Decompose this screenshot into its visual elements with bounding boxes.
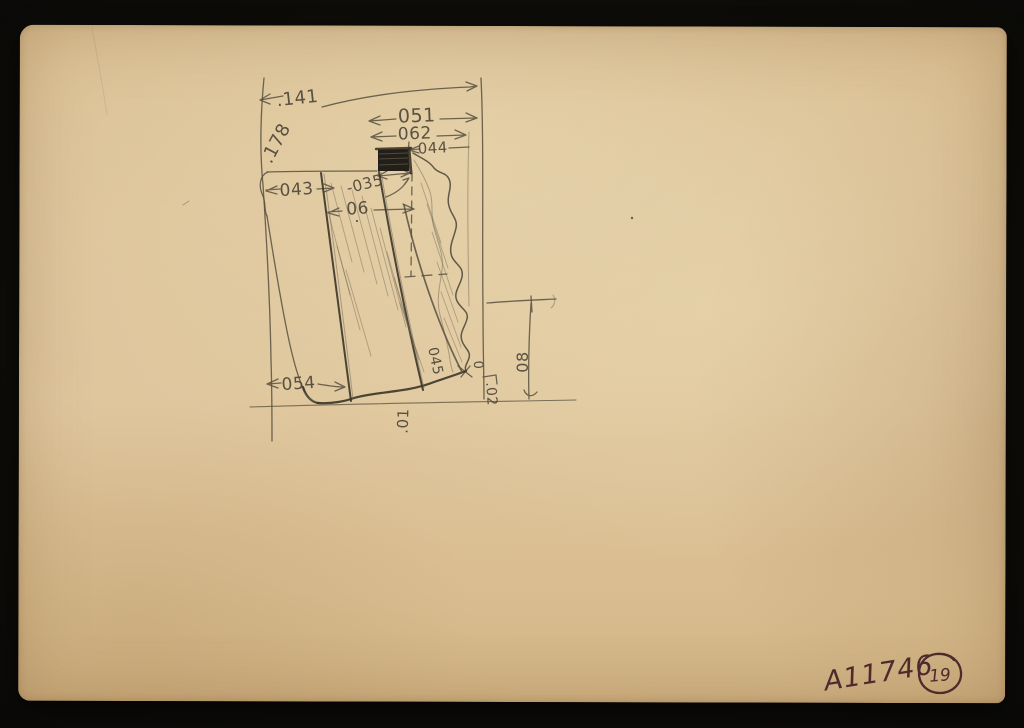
dim-label-044: 044 bbox=[417, 138, 448, 158]
ink-annotations: A11746 19 bbox=[820, 650, 961, 698]
dim-label-06: 06 bbox=[346, 198, 370, 220]
dim-label-178: .178 bbox=[257, 120, 295, 167]
page-number: 19 bbox=[928, 665, 951, 687]
dim-label-054: 054 bbox=[281, 373, 316, 395]
scan-background: .141 .178 051 062 044 043 -035 06 054 04… bbox=[0, 0, 1024, 728]
pencil-sketch: .141 .178 051 062 044 043 -035 06 054 04… bbox=[0, 0, 1024, 728]
dim-label-01: .01 bbox=[394, 408, 413, 434]
dim-label-035: -035 bbox=[345, 171, 385, 197]
dim-label-045: 045 bbox=[424, 346, 446, 377]
filled-block bbox=[376, 148, 411, 173]
dim-label-02: .02 bbox=[482, 382, 500, 407]
dim-label-043: 043 bbox=[279, 179, 314, 201]
dim-label-0: 0 bbox=[470, 360, 485, 369]
dim-label-08: 08 bbox=[513, 351, 532, 372]
dim-label-141: .141 bbox=[275, 86, 319, 111]
